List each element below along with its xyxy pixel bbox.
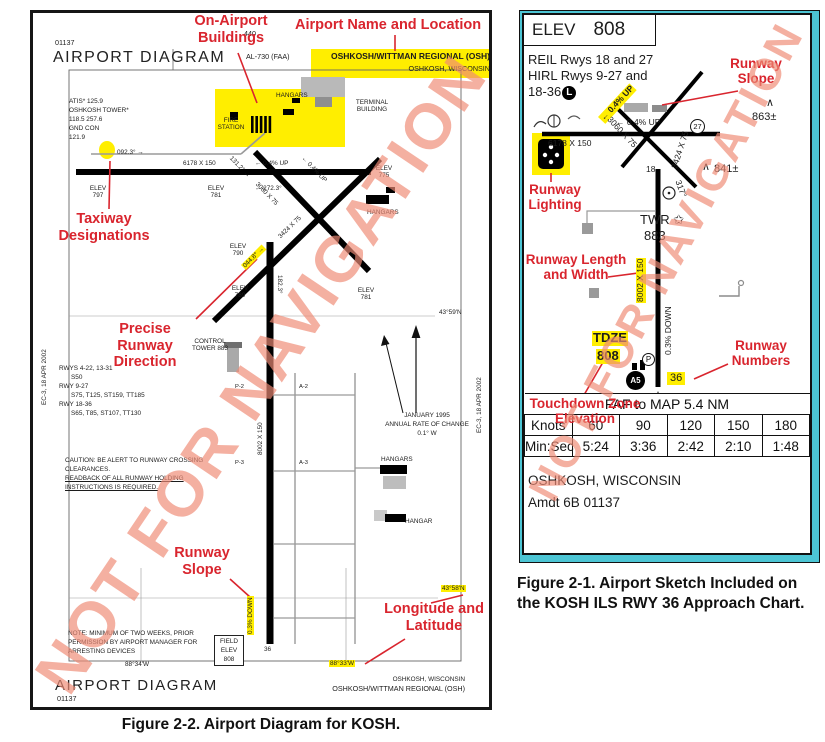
freq-gnd-label: GND CON [69,125,99,132]
twr-star-icon: ✩ [673,212,684,227]
callout-runway-slope-sketch: Runway Slope [720,57,792,87]
callout-runway-lighting: Runway Lighting [524,183,586,213]
caution-line-4: INSTRUCTIONS IS REQUIRED. [65,484,158,491]
latitude-4358-highlighted: 43°58'N [441,585,466,592]
sk-obstacle-841-caret: ∧ [702,161,710,174]
field-elev-value: 808 [224,656,235,663]
freq-tower-name: OSHKOSH TOWER* [69,107,129,114]
hangars-label-mid: HANGARS [367,209,399,216]
figure-2-1-approach-sketch: ← 0.4% UP 8002 X 150 [519,10,820,563]
field-elev-word2: ELEV [221,647,237,654]
figure-2-1-caption-line2: the KOSH ILS RWY 36 Approach Chart. [517,595,804,612]
rwy-data-5: RWY 18-36 [59,401,92,408]
caution-line-1: CAUTION: BE ALERT TO RUNWAY CROSSING [65,457,203,464]
callout-airport-name-location: Airport Name and Location [295,17,481,34]
sk-twr-elevation: 883 [644,229,666,244]
longitude-8834: 88°34'W [125,661,149,668]
rwy-data-2: S50 [59,374,82,381]
parking-p: P [646,355,651,364]
control-tower-label: CONTROL TOWER 883 [191,338,229,353]
l-circle-symbol: L [562,86,576,100]
hangars-label-bottom: HANGARS [381,456,413,463]
comm-frequencies-block: ATIS* 125.9 OSHKOSH TOWER* 118.5 257.6 G… [69,97,129,142]
note-line-2: PERMISSION BY AIRPORT MANAGER FOR [68,639,197,646]
callout-precise-runway-direction: Precise Runway Direction [99,321,191,371]
sk-twr-label: TWR ✩ [640,213,684,228]
figure-2-1-caption-line1: Figure 2-1. Airport Sketch Included on [517,575,797,592]
callout-runway-length-width: Runway Length and Width [524,253,628,283]
sk-a5-approach-light-symbol: A5 [626,371,645,390]
sk-rwy422-dimensions: 3424 X 75 [670,130,691,170]
lighting-line-1: REIL Rwys 18 and 27 [528,52,653,67]
sk-rwy36-number-highlighted: 36 [667,372,685,385]
caution-line-3: READBACK OF ALL RUNWAY HOLDING [65,475,184,482]
knots-150: 150 [715,415,763,436]
lighting-line-2: HIRL Rwys 9-27 and [528,68,647,83]
minsec-150: 2:10 [715,436,763,457]
elev-781-a: ELEV 781 [203,185,229,200]
elev-781-b: ELEV 781 [353,287,379,302]
sketch-inner-frame: ← 0.4% UP 8002 X 150 [522,13,812,555]
diagram-title-bottom: AIRPORT DIAGRAM [55,677,218,694]
taxiway-a2: A-2 [299,384,308,391]
footer-city: OSHKOSH, WISCONSIN [313,676,465,683]
elev-box-value: 808 [593,19,625,41]
elev-789: ELEV 789 [227,285,253,300]
rwy-data-4: S75, T125, ST159, TT185 [59,392,145,399]
figure-2-1-caption: Figure 2-1. Airport Sketch Included on t… [517,574,817,614]
twr-text: TWR [640,212,670,227]
airport-name-line: OSHKOSH/WITTMAN REGIONAL (OSH) [314,52,490,62]
figure-2-2-caption: Figure 2-2. Airport Diagram for KOSH. [30,716,492,734]
sketch-footer-city: OSHKOSH, WISCONSIN [528,473,681,489]
taxiway-a3: A-3 [299,460,308,467]
knots-180: 180 [762,415,810,436]
callout-runway-numbers: Runway Numbers [726,339,796,369]
variation-line-2: ANNUAL RATE OF CHANGE [385,421,469,428]
callout-longitude-latitude: Longitude and Latitude [378,601,490,634]
sk-rwy18-number: 18 [646,165,655,175]
rwy13-heading: 131.2° → [228,155,252,179]
sk-obstacle-841: 841± [714,163,738,176]
elev-790: ELEV 790 [225,243,251,258]
note-line-1: NOTE: MINIMUM OF TWO WEEKS, PRIOR [68,630,194,637]
sk-tdze-value-highlighted: 808 [596,349,620,364]
freq-atis: ATIS* 125.9 [69,98,103,105]
knots-120: 120 [667,415,715,436]
freq-gnd-value: 121.9 [69,134,85,141]
minsec-120: 2:42 [667,436,715,457]
margin-date-left: EC-3, 18 APR 2002 [41,349,48,405]
field-elevation-box: FIELD ELEV 808 [214,635,244,666]
elev-box-label: ELEV [532,20,575,40]
rwy36-slope-highlighted: 0.3% DOWN [247,596,254,635]
rwy927-dimensions: 6178 X 150 [183,160,216,167]
rwy927-slope: ← 0.4% UP [255,160,288,167]
lighting-notes: REIL Rwys 18 and 27 HIRL Rwys 9-27 and 1… [528,52,653,100]
note-line-3: ARRESTING DEVICES [68,648,135,655]
page: { "colors": {"callout_red":"#d9252e","hi… [0,0,825,742]
callout-on-airport-buildings: On-Airport Buildings [181,13,281,46]
rwy422-dimensions: 3424 X 75 [277,215,303,241]
sk-rwy36-gradient: 0.3% DOWN [664,306,674,355]
sk-obstacle-863-caret: ∧ [766,97,774,110]
chart-code-bottom: 01137 [57,695,76,703]
sk-parking-circle: P [642,353,655,366]
callout-touchdown-zone-elevation: Touchdown Zone Elevation [526,397,644,427]
sk-tdze-label-highlighted: TDZE [592,331,628,346]
minsec-90: 3:36 [620,436,668,457]
highlight-taxiway-designation [99,141,115,159]
latitude-4359: 43°59'N [439,309,462,316]
taxiway-p3: P-3 [235,460,244,467]
field-elev-word1: FIELD [220,638,238,645]
rwy1331-slope: ← 0.4% UP [300,155,328,184]
sk-rwy27-number-circle: 27 [690,119,705,134]
sketch-footer-amdt: Amdt 6B 01137 [528,495,620,511]
sk-obstacle-863: 863± [752,111,776,124]
lighting-line-3: 18-36 [528,84,561,99]
sk-rwy927-dimensions: 6178 X 150 [548,139,591,149]
taxiway-p2: P-2 [235,384,244,391]
callout-taxiway-designations: Taxiway Designations [53,211,155,244]
longitude-8833-highlighted: 88°33'W [329,660,355,667]
figure-2-2-airport-diagram: 01137 AIRPORT DIAGRAM 440 AL-730 (FAA) O… [30,10,492,710]
diagram-title-top: AIRPORT DIAGRAM [53,49,225,67]
sk-rwy31-heading: 317° [673,179,688,199]
rwy18-heading: 182.3° [276,275,283,294]
footer-airport-name: OSHKOSH/WITTMAN REGIONAL (OSH) [283,685,465,693]
variation-line-1: JANUARY 1995 [404,412,450,419]
elev-797: ELEV 797 [85,185,111,200]
margin-date-right: EC-3, 18 APR 2002 [476,377,483,433]
rwy-data-6: S65, T85, ST107, TT130 [59,410,141,417]
minsec-label: Min:Sec [525,436,573,457]
magnetic-variation-note: JANUARY 1995 ANNUAL RATE OF CHANGE 0.1° … [373,411,481,438]
al-reference: AL-730 (FAA) [246,53,290,61]
airport-city-line: OSHKOSH, WISCONSIN [314,65,490,73]
elev-box: ELEV 808 [524,15,656,46]
hangar-label-bottom: HANGAR [405,518,432,525]
rwy1836-dimensions-highlighted: 8002 X 150 [636,258,646,303]
elev-775: ELEV 775 [371,165,397,180]
freq-tower-values: 118.5 257.6 [69,116,102,123]
rwy1836-dimensions: 8002 X 150 [257,422,264,455]
rwy-data-3: RWY 9-27 [59,383,88,390]
caution-line-2: CLEARANCES. [65,466,110,473]
chart-code-top: 01137 [55,39,74,47]
hangars-label-top: HANGARS [276,92,308,99]
runway-data-block: RWYS 4-22, 13-31 S50 RWY 9-27 S75, T125,… [59,364,145,418]
terminal-building-label: TERMINAL BUILDING [351,99,393,114]
rwy9-heading: 092.3° → [117,149,144,156]
note-block: NOTE: MINIMUM OF TWO WEEKS, PRIOR PERMIS… [68,629,197,656]
fire-station-label: FIRE STATION [215,117,247,132]
caution-block: CAUTION: BE ALERT TO RUNWAY CROSSING CLE… [65,456,203,492]
minsec-60: 5:24 [572,436,620,457]
sk-rwy27-number: 27 [693,122,701,131]
callout-runway-slope: Runway Slope [171,545,233,578]
rwy36-number: 36 [264,646,271,653]
minsec-180: 1:48 [762,436,810,457]
variation-line-3: 0.1° W [417,430,436,437]
